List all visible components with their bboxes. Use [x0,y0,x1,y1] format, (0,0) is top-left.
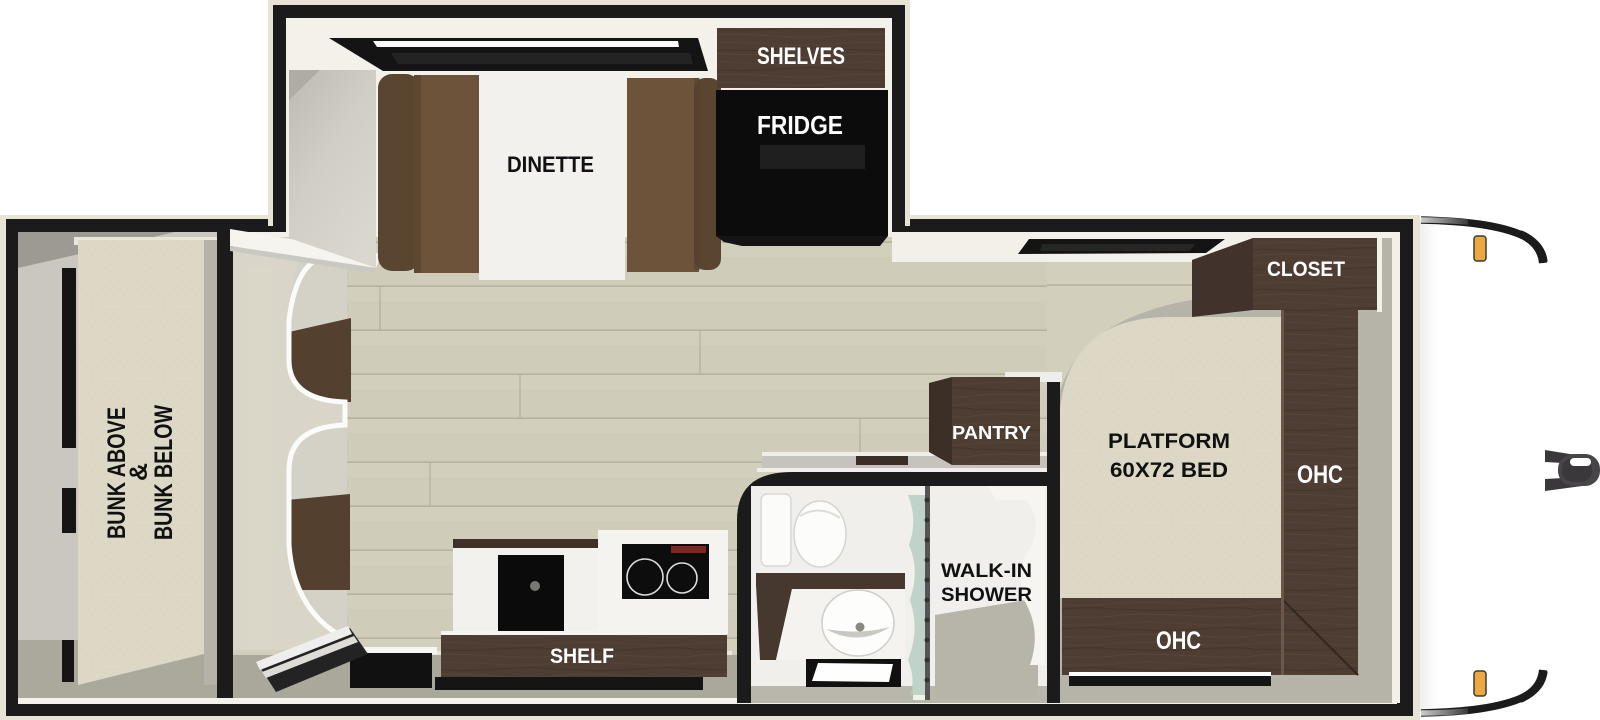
svg-text:60X72 BED: 60X72 BED [1110,459,1228,482]
svg-text:PLATFORM: PLATFORM [1108,430,1230,453]
svg-text:CLOSET: CLOSET [1267,258,1345,281]
svg-text:WALK-IN: WALK-IN [941,560,1032,582]
svg-text:OHC: OHC [1297,461,1343,489]
svg-text:SHOWER: SHOWER [941,584,1032,606]
svg-text:SHELF: SHELF [550,645,614,668]
svg-text:DINETTE: DINETTE [507,152,594,177]
svg-text:OHC: OHC [1156,627,1201,655]
svg-text:FRIDGE: FRIDGE [757,110,843,140]
svg-text:&: & [125,463,153,481]
svg-text:BUNK BELOW: BUNK BELOW [150,405,178,540]
svg-text:SHELVES: SHELVES [757,43,845,70]
svg-text:PANTRY: PANTRY [952,423,1031,443]
